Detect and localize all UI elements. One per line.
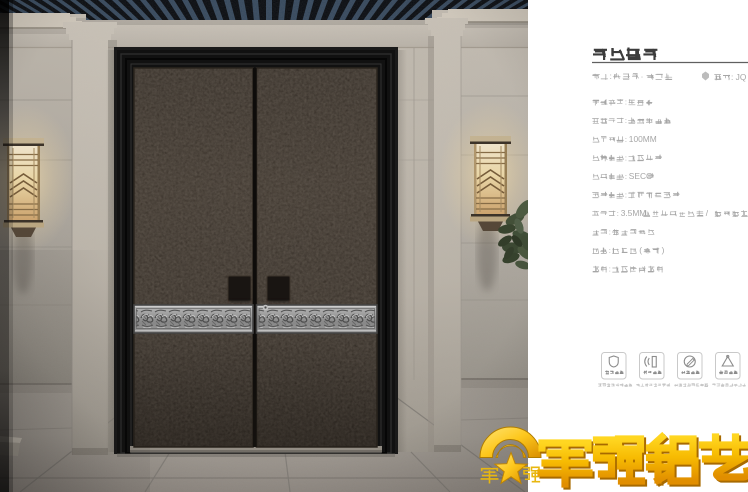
svg-text:·: · (641, 72, 644, 82)
svg-text::: : (625, 116, 627, 125)
svg-text:(: ( (639, 245, 642, 255)
svg-text::: : (625, 153, 627, 162)
svg-text:100MM: 100MM (629, 134, 657, 144)
svg-text::: : (609, 228, 611, 237)
svg-text:: JQ: : JQ (731, 72, 747, 82)
svg-text::: : (625, 135, 627, 144)
svg-text:3.5MM: 3.5MM (621, 208, 647, 218)
svg-text::: : (625, 190, 627, 199)
svg-text::: : (625, 172, 627, 181)
svg-text:): ) (662, 245, 665, 255)
svg-text::: : (609, 265, 611, 274)
svg-text::: : (617, 209, 619, 218)
svg-text::: : (625, 98, 627, 107)
svg-text::: : (609, 246, 611, 255)
svg-text::: : (610, 72, 612, 81)
